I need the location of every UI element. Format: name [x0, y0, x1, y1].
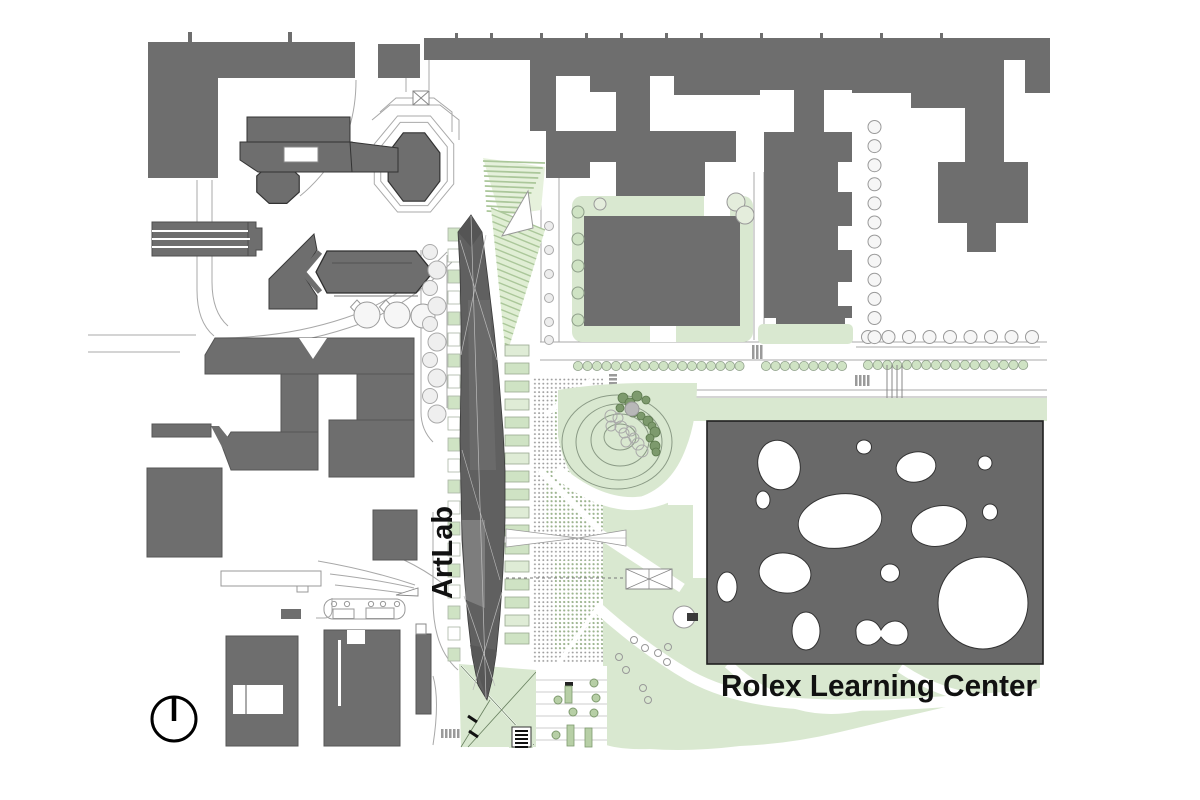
svg-text:Rolex Learning Center: Rolex Learning Center — [721, 668, 1037, 703]
svg-text:ArtLab: ArtLab — [427, 506, 459, 599]
